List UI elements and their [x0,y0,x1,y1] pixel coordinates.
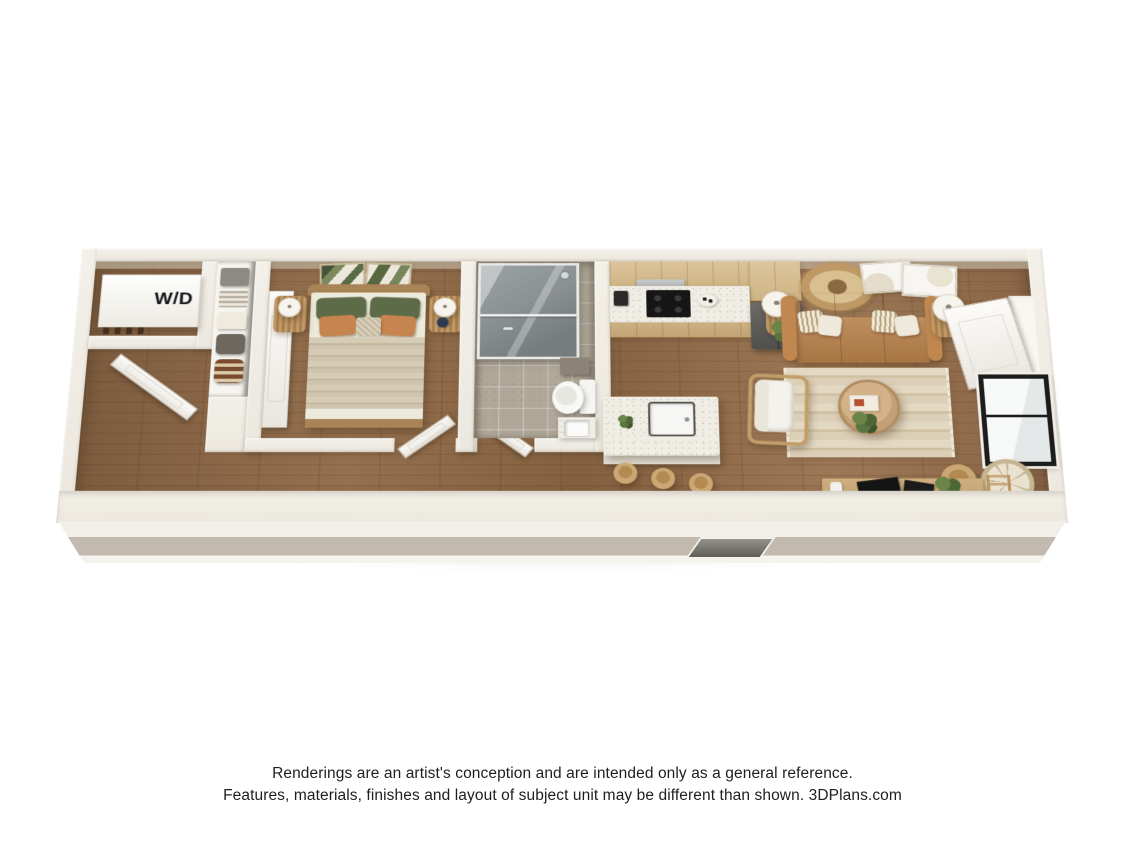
sofa-pillow-4 [893,315,920,337]
disclaimer-line-1: Renderings are an artist's conception an… [0,763,1125,785]
folded-towel-striped [218,291,248,307]
pillow-accent-center [356,317,382,335]
front-wall-face [58,521,1066,563]
floorplan-3d: W/D [56,248,1068,523]
storage-bin [220,268,250,286]
hall-wall-segment-1 [244,438,394,452]
fruit-bowl [698,294,718,306]
folded-towel-cream [217,312,247,329]
jute-center-knot [827,280,848,294]
shower [477,263,580,359]
sofa-pillow-2 [817,314,842,337]
pillow-rust-right [378,315,417,337]
disclaimer-line-2: Features, materials, finishes and layout… [0,785,1125,807]
blanket-roll [213,359,244,383]
bed-blanket [306,337,425,408]
cooktop [646,290,691,317]
closet-wall-block [205,397,248,452]
shower-head [561,272,569,279]
accent-chair [747,373,809,446]
coffee-maker [614,291,629,306]
island-faucet [685,417,690,421]
shower-frame-bar [480,314,576,316]
storage-basket [215,334,245,354]
toilet-bowl [552,381,583,414]
outer-wall-front-top [56,491,1068,523]
window [978,374,1057,466]
entry-step-notch [685,537,775,559]
shower-glass-sheen [480,266,577,357]
kitchen-lower-cabinets [610,322,751,337]
coffee-table-tray [849,395,879,411]
coffee-table-plant [850,410,881,434]
bed [305,293,426,428]
vanity-sink [564,420,590,437]
bar-stool-2 [651,468,675,489]
washer-dryer-label: W/D [154,290,194,309]
bed-footboard [305,419,423,428]
sofa-arm-left [780,296,797,361]
washer-dryer-cabinet: W/D [98,275,202,328]
island-sink [648,402,696,437]
pillow-rust-left [319,315,356,337]
window-sash [986,415,1047,418]
island-plant [617,414,635,430]
shower-handle [503,327,513,330]
floorplan-render: W/D [0,0,1125,844]
bathroom-wall-west [457,261,476,452]
accent-chair-back-pillow [754,379,769,431]
wd-closet-wall-south [88,336,213,349]
tray-book [854,399,864,406]
bar-stool-1 [613,463,637,484]
disclaimer: Renderings are an artist's conception an… [0,763,1125,807]
bathroom-wall-cabinet [560,358,589,375]
